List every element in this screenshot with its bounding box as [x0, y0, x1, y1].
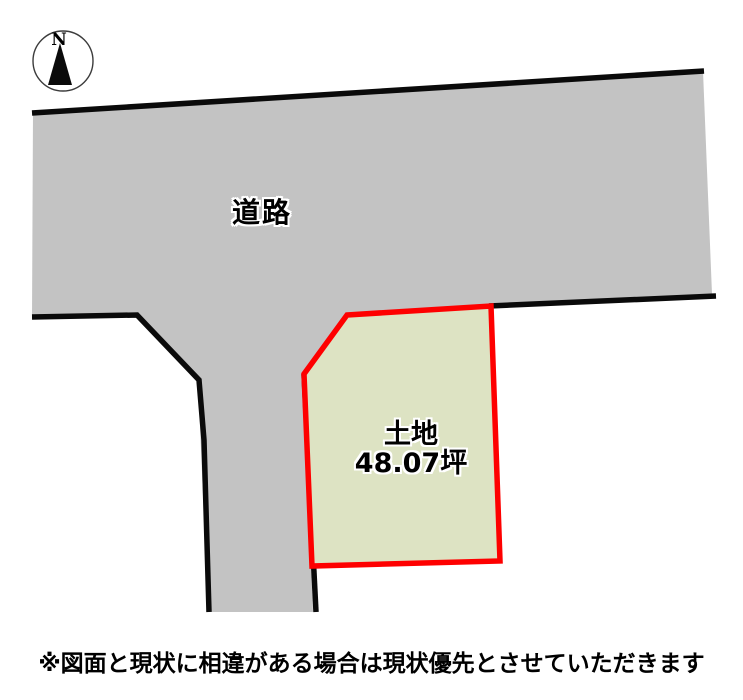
road-edge-left: [32, 315, 209, 612]
site-plan-page: N 道路 土地 48.07坪 ※図面と現状に相違がある場合は現状優先とさせていた…: [0, 0, 743, 700]
parcel-label: 土地 48.07坪: [355, 420, 467, 478]
site-plan-canvas: N: [0, 0, 743, 700]
compass-north-label: N: [51, 30, 67, 50]
parcel-name-label: 土地: [355, 420, 467, 449]
road-label: 道路: [232, 191, 292, 231]
compass: N: [33, 30, 93, 91]
parcel-area-label: 48.07坪: [355, 449, 467, 478]
disclaimer-text: ※図面と現状に相違がある場合は現状優先とさせていただきます: [0, 644, 743, 678]
